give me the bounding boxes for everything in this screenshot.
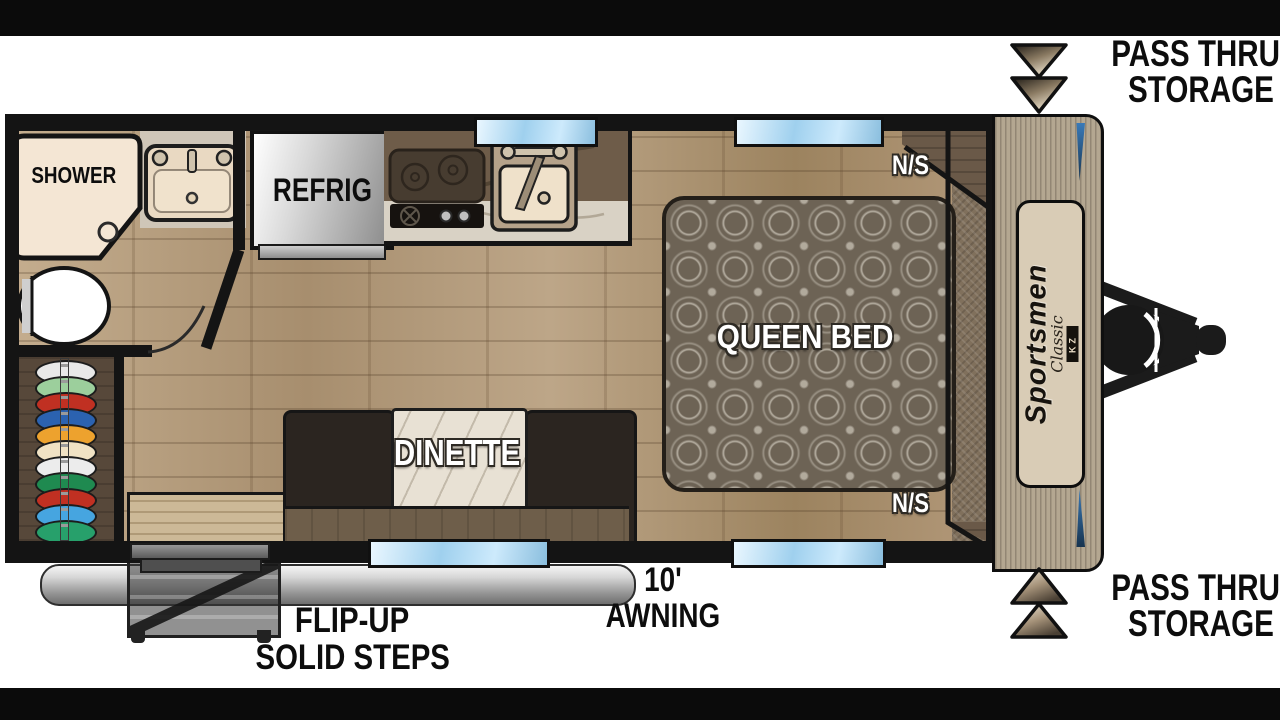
floorplan-canvas: SHOWER REFRIG DINETTE QUEEN BED bbox=[0, 0, 1280, 720]
dinette-label: DINETTE bbox=[340, 432, 575, 474]
entry-door-step bbox=[140, 558, 262, 573]
accent-stripe-top bbox=[1075, 123, 1085, 181]
brand-maker: KZ bbox=[1066, 326, 1078, 362]
arrow-down bbox=[1012, 78, 1066, 112]
arrow-up bbox=[1012, 569, 1066, 603]
brand-plaque: Sportsmen Classic KZ bbox=[1016, 200, 1085, 488]
pass-thru-arrows-up-icon bbox=[1006, 566, 1072, 640]
steps-annotation: FLIP-UP SOLID STEPS bbox=[200, 602, 505, 676]
pass-thru-annotation-bottom: PASS THRU STORAGE bbox=[1040, 570, 1280, 642]
window-bottom-dinette bbox=[368, 539, 550, 568]
queen-bed-label: QUEEN BED bbox=[690, 318, 920, 356]
brand-series: Classic bbox=[1049, 315, 1064, 372]
awning-label: AWNING bbox=[605, 598, 720, 634]
window-top-bedroom bbox=[734, 117, 884, 147]
window-top-kitchen bbox=[474, 117, 598, 147]
pass-thru-arrows-down-icon bbox=[1006, 42, 1072, 116]
wardrobe-wall bbox=[114, 350, 124, 543]
pass-thru-annotation-top: PASS THRU STORAGE bbox=[1040, 36, 1280, 108]
front-cap: Sportsmen Classic KZ bbox=[992, 114, 1104, 572]
shower-label: SHOWER bbox=[20, 162, 128, 189]
nightstand-label-bottom: N/S bbox=[875, 488, 947, 519]
solid-steps-label: SOLID STEPS bbox=[255, 639, 449, 676]
arrow-down bbox=[1012, 45, 1066, 77]
awning-length-label: 10' bbox=[644, 562, 682, 598]
arrow-up bbox=[1012, 604, 1066, 637]
accent-stripe-bottom bbox=[1075, 489, 1085, 547]
flip-up-label: FLIP-UP bbox=[295, 602, 409, 639]
brand-name: Sportsmen bbox=[1023, 264, 1049, 424]
awning-annotation: 10' AWNING bbox=[570, 562, 755, 634]
brand-plaque-text: Sportsmen Classic KZ bbox=[1022, 206, 1079, 482]
nightstand-label-top: N/S bbox=[875, 150, 947, 181]
wall-rear bbox=[5, 114, 19, 563]
